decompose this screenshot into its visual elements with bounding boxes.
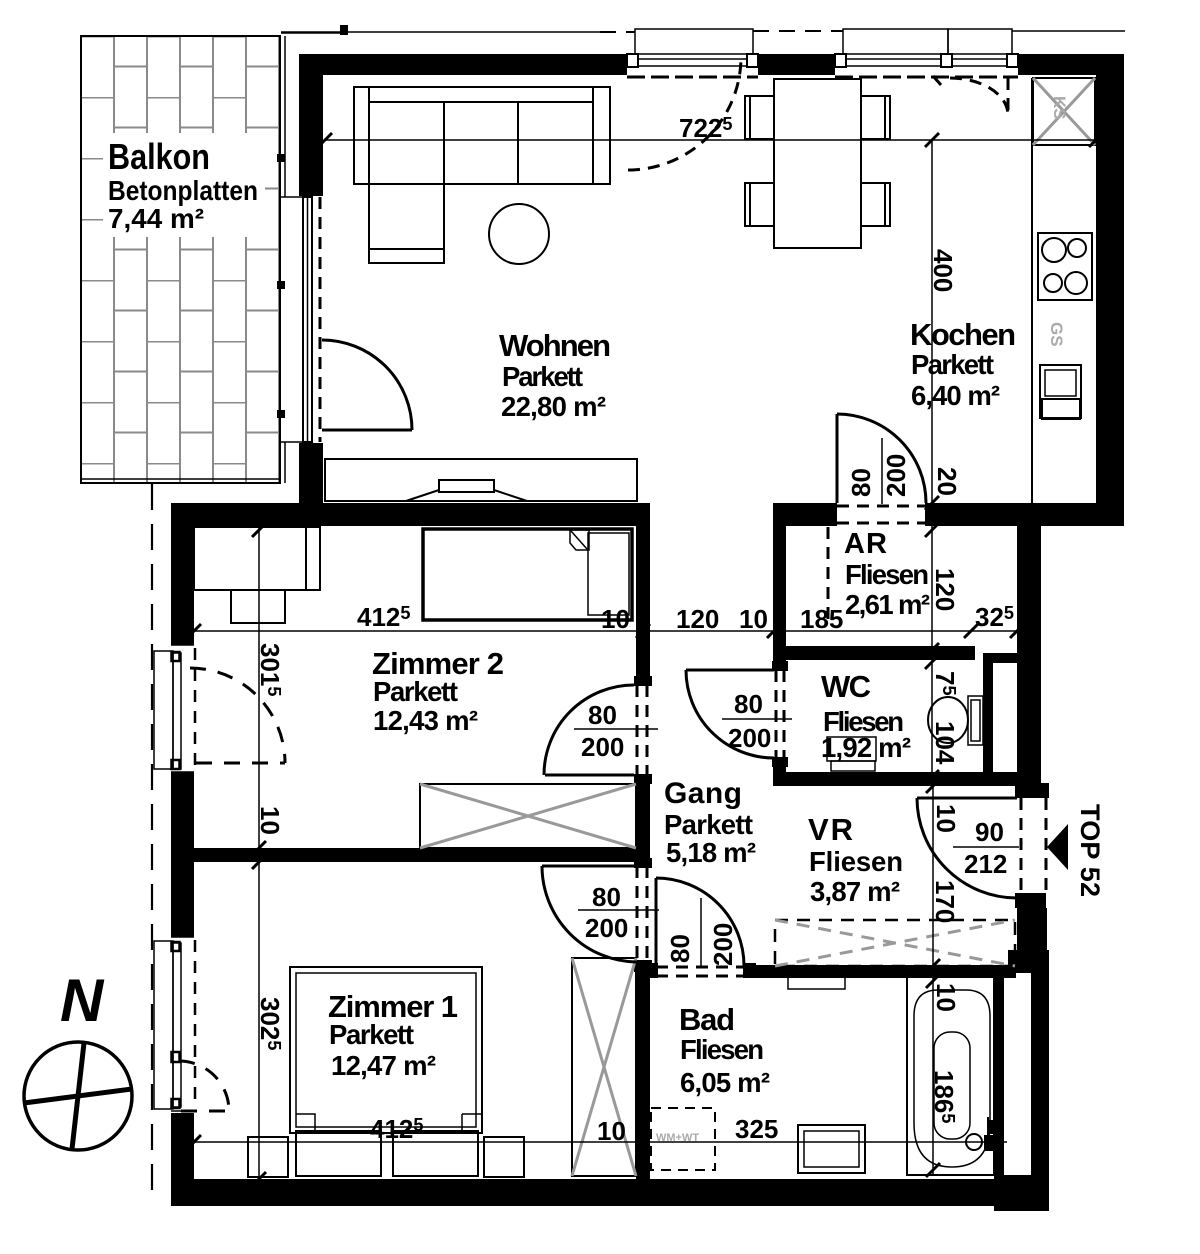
svg-text:KS: KS bbox=[1050, 96, 1069, 120]
svg-text:Balkon: Balkon bbox=[108, 136, 210, 177]
svg-text:VR: VR bbox=[808, 812, 853, 847]
svg-text:10: 10 bbox=[931, 983, 961, 1012]
svg-text:104: 104 bbox=[930, 721, 960, 765]
svg-text:Betonplatten: Betonplatten bbox=[108, 175, 258, 206]
svg-text:Parkett: Parkett bbox=[911, 349, 994, 380]
svg-text:GS: GS bbox=[1047, 322, 1066, 347]
svg-text:Gang: Gang bbox=[664, 777, 742, 810]
svg-text:1,92 m²: 1,92 m² bbox=[821, 732, 911, 763]
svg-text:2,61 m²: 2,61 m² bbox=[845, 589, 930, 620]
svg-text:75: 75 bbox=[930, 671, 960, 696]
svg-text:AR: AR bbox=[844, 528, 887, 560]
svg-text:7225: 7225 bbox=[679, 113, 733, 143]
svg-text:400: 400 bbox=[928, 249, 958, 292]
svg-text:170: 170 bbox=[930, 880, 960, 923]
svg-text:80: 80 bbox=[846, 468, 876, 497]
svg-text:120: 120 bbox=[676, 604, 719, 634]
svg-text:10: 10 bbox=[931, 804, 961, 833]
svg-text:12,43 m²: 12,43 m² bbox=[373, 705, 478, 736]
svg-text:80: 80 bbox=[592, 882, 621, 912]
svg-text:4125: 4125 bbox=[370, 1114, 424, 1144]
svg-text:7,44 m²: 7,44 m² bbox=[108, 203, 204, 234]
svg-text:200: 200 bbox=[881, 454, 911, 497]
svg-text:4125: 4125 bbox=[357, 602, 411, 632]
svg-text:5,18 m²: 5,18 m² bbox=[666, 837, 756, 868]
svg-text:Fliesen: Fliesen bbox=[680, 1034, 764, 1065]
svg-text:22,80 m²: 22,80 m² bbox=[501, 391, 606, 422]
svg-text:10: 10 bbox=[601, 604, 630, 634]
svg-text:20: 20 bbox=[932, 467, 962, 496]
svg-text:80: 80 bbox=[665, 934, 695, 963]
svg-text:Parkett: Parkett bbox=[373, 676, 458, 707]
svg-text:120: 120 bbox=[930, 568, 960, 611]
svg-text:325: 325 bbox=[735, 1114, 778, 1144]
svg-text:90: 90 bbox=[975, 817, 1004, 847]
svg-text:200: 200 bbox=[585, 913, 628, 943]
svg-text:Fliesen: Fliesen bbox=[809, 846, 903, 877]
svg-text:Wohnen: Wohnen bbox=[499, 328, 611, 363]
svg-text:10: 10 bbox=[597, 1116, 626, 1146]
svg-text:Parkett: Parkett bbox=[664, 809, 753, 840]
svg-text:6,05 m²: 6,05 m² bbox=[680, 1067, 770, 1098]
svg-text:325: 325 bbox=[975, 602, 1014, 632]
svg-text:WC: WC bbox=[821, 669, 871, 704]
svg-text:200: 200 bbox=[581, 732, 624, 762]
svg-text:200: 200 bbox=[728, 723, 771, 753]
svg-text:N: N bbox=[60, 967, 105, 1034]
svg-text:200: 200 bbox=[708, 923, 738, 966]
svg-text:80: 80 bbox=[734, 689, 763, 719]
svg-text:80: 80 bbox=[588, 700, 617, 730]
svg-text:3,87 m²: 3,87 m² bbox=[810, 876, 900, 907]
svg-text:Parkett: Parkett bbox=[502, 361, 583, 392]
svg-text:Kochen: Kochen bbox=[910, 317, 1016, 352]
svg-text:212: 212 bbox=[964, 849, 1007, 879]
svg-text:185: 185 bbox=[800, 604, 843, 634]
svg-text:10: 10 bbox=[739, 604, 768, 634]
svg-text:6,40 m²: 6,40 m² bbox=[911, 380, 1000, 411]
svg-text:12,47 m²: 12,47 m² bbox=[331, 1050, 436, 1081]
svg-text:10: 10 bbox=[255, 806, 285, 835]
svg-text:Fliesen: Fliesen bbox=[845, 559, 929, 590]
svg-text:TOP 52: TOP 52 bbox=[1075, 804, 1105, 897]
svg-text:Bad: Bad bbox=[679, 1002, 735, 1037]
svg-text:Parkett: Parkett bbox=[329, 1019, 414, 1050]
